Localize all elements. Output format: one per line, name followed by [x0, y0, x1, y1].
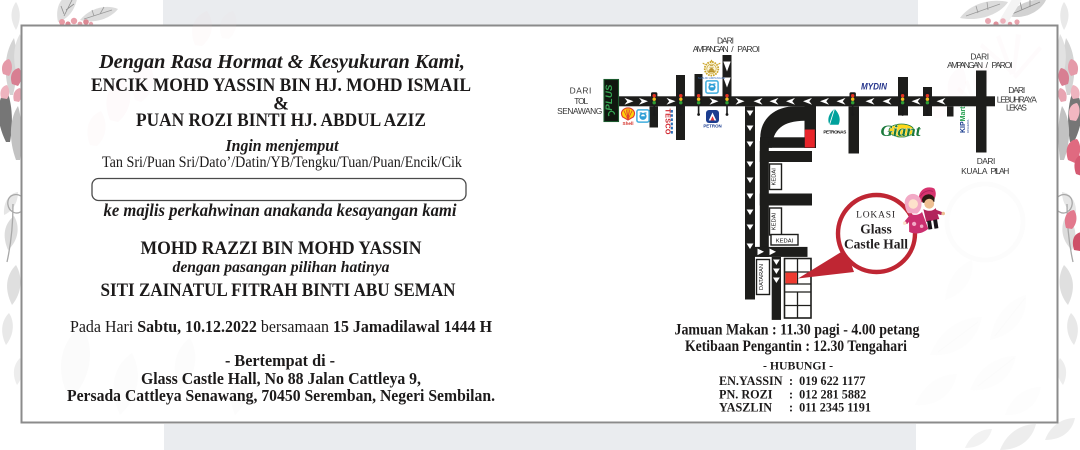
svg-text:PAROI: PAROI: [992, 60, 1013, 70]
svg-text:YASZLIN: YASZLIN: [719, 401, 772, 415]
svg-text:Pada Hari Sabtu, 10.12.2022 be: Pada Hari Sabtu, 10.12.2022 bersamaan 15…: [70, 317, 492, 336]
svg-text:: 011 2345 1191: : 011 2345 1191: [789, 401, 871, 415]
svg-text:Ketibaan Pengantin : 12.30 Ten: Ketibaan Pengantin : 12.30 Tengahari: [685, 338, 908, 355]
svg-text:MASJID AMPANGAN: MASJID AMPANGAN: [698, 76, 725, 80]
svg-text:PN. ROZI: PN. ROZI: [719, 387, 773, 401]
svg-text:TOL: TOL: [574, 96, 588, 106]
svg-text:MOHD RAZZI BIN MOHD YASSIN: MOHD RAZZI BIN MOHD YASSIN: [141, 238, 422, 259]
svg-text:dengan pasangan pilihan hatiny: dengan pasangan pilihan hatinya: [173, 259, 390, 276]
svg-text:DARI: DARI: [570, 85, 592, 95]
svg-text:Persada Cattleya Senawang, 704: Persada Cattleya Senawang, 70450 Seremba…: [67, 386, 495, 405]
svg-text:DARI: DARI: [1008, 85, 1025, 95]
svg-text:AMPANGAN: AMPANGAN: [693, 44, 729, 54]
svg-text:Castle Hall: Castle Hall: [844, 237, 908, 252]
svg-text:Dengan Rasa Hormat & Kesyukura: Dengan Rasa Hormat & Kesyukuran Kami,: [98, 51, 465, 73]
svg-text:PETRON: PETRON: [703, 123, 721, 128]
svg-text:: 019 622 1177: : 019 622 1177: [789, 374, 866, 388]
svg-text:LEKAS: LEKAS: [1006, 103, 1027, 113]
svg-text:SENAWANG: SENAWANG: [557, 106, 602, 116]
svg-text:PETRONAS: PETRONAS: [823, 130, 846, 135]
svg-text:PUAN ROZI BINTI HJ. ABDUL AZIZ: PUAN ROZI BINTI HJ. ABDUL AZIZ: [136, 110, 426, 131]
svg-text:LOKASI: LOKASI: [856, 211, 896, 221]
svg-text:KEDAI: KEDAI: [772, 168, 778, 186]
svg-text:PILAH: PILAH: [991, 166, 1010, 176]
svg-text:ke majlis perkahwinan anakanda: ke majlis perkahwinan anakanda kesayanga…: [104, 200, 457, 220]
svg-text:DARI: DARI: [977, 156, 996, 166]
svg-text:Tan Sri/Puan Sri/Dato’/Datin/Y: Tan Sri/Puan Sri/Dato’/Datin/YB/Tengku/T…: [102, 154, 462, 171]
svg-text:DATARAN: DATARAN: [759, 264, 765, 290]
svg-text:Ingin menjemput: Ingin menjemput: [225, 136, 339, 155]
svg-text:EN.YASSIN: EN.YASSIN: [719, 374, 783, 388]
svg-text:Giant: Giant: [881, 123, 922, 140]
svg-text:: 012 281 5882: : 012 281 5882: [789, 387, 866, 401]
svg-text:KIPMart: KIPMart: [960, 106, 967, 133]
svg-text:- HUBUNGI -: - HUBUNGI -: [763, 361, 833, 373]
svg-text:PLUS: PLUS: [604, 84, 615, 111]
svg-text:PASARAYA: PASARAYA: [966, 119, 970, 133]
svg-text:KEDAI: KEDAI: [772, 212, 778, 230]
svg-text:AMPANGAN: AMPANGAN: [947, 60, 983, 70]
svg-text:PAROI: PAROI: [737, 44, 760, 54]
svg-text:KUALA: KUALA: [961, 166, 988, 176]
svg-text:- Bertempat di -: - Bertempat di -: [225, 351, 335, 370]
svg-text:MYDIN: MYDIN: [861, 82, 888, 93]
svg-text:Shell: Shell: [623, 121, 634, 126]
svg-text:Jamuan Makan : 11.30 pagi - 4: Jamuan Makan : 11.30 pagi - 4.00 petang: [675, 322, 920, 339]
svg-text:SITI ZAINATUL FITRAH BINTI ABU: SITI ZAINATUL FITRAH BINTI ABU SEMAN: [101, 280, 456, 301]
svg-text:Glass: Glass: [860, 222, 892, 237]
svg-text:KEDAI: KEDAI: [776, 239, 794, 245]
